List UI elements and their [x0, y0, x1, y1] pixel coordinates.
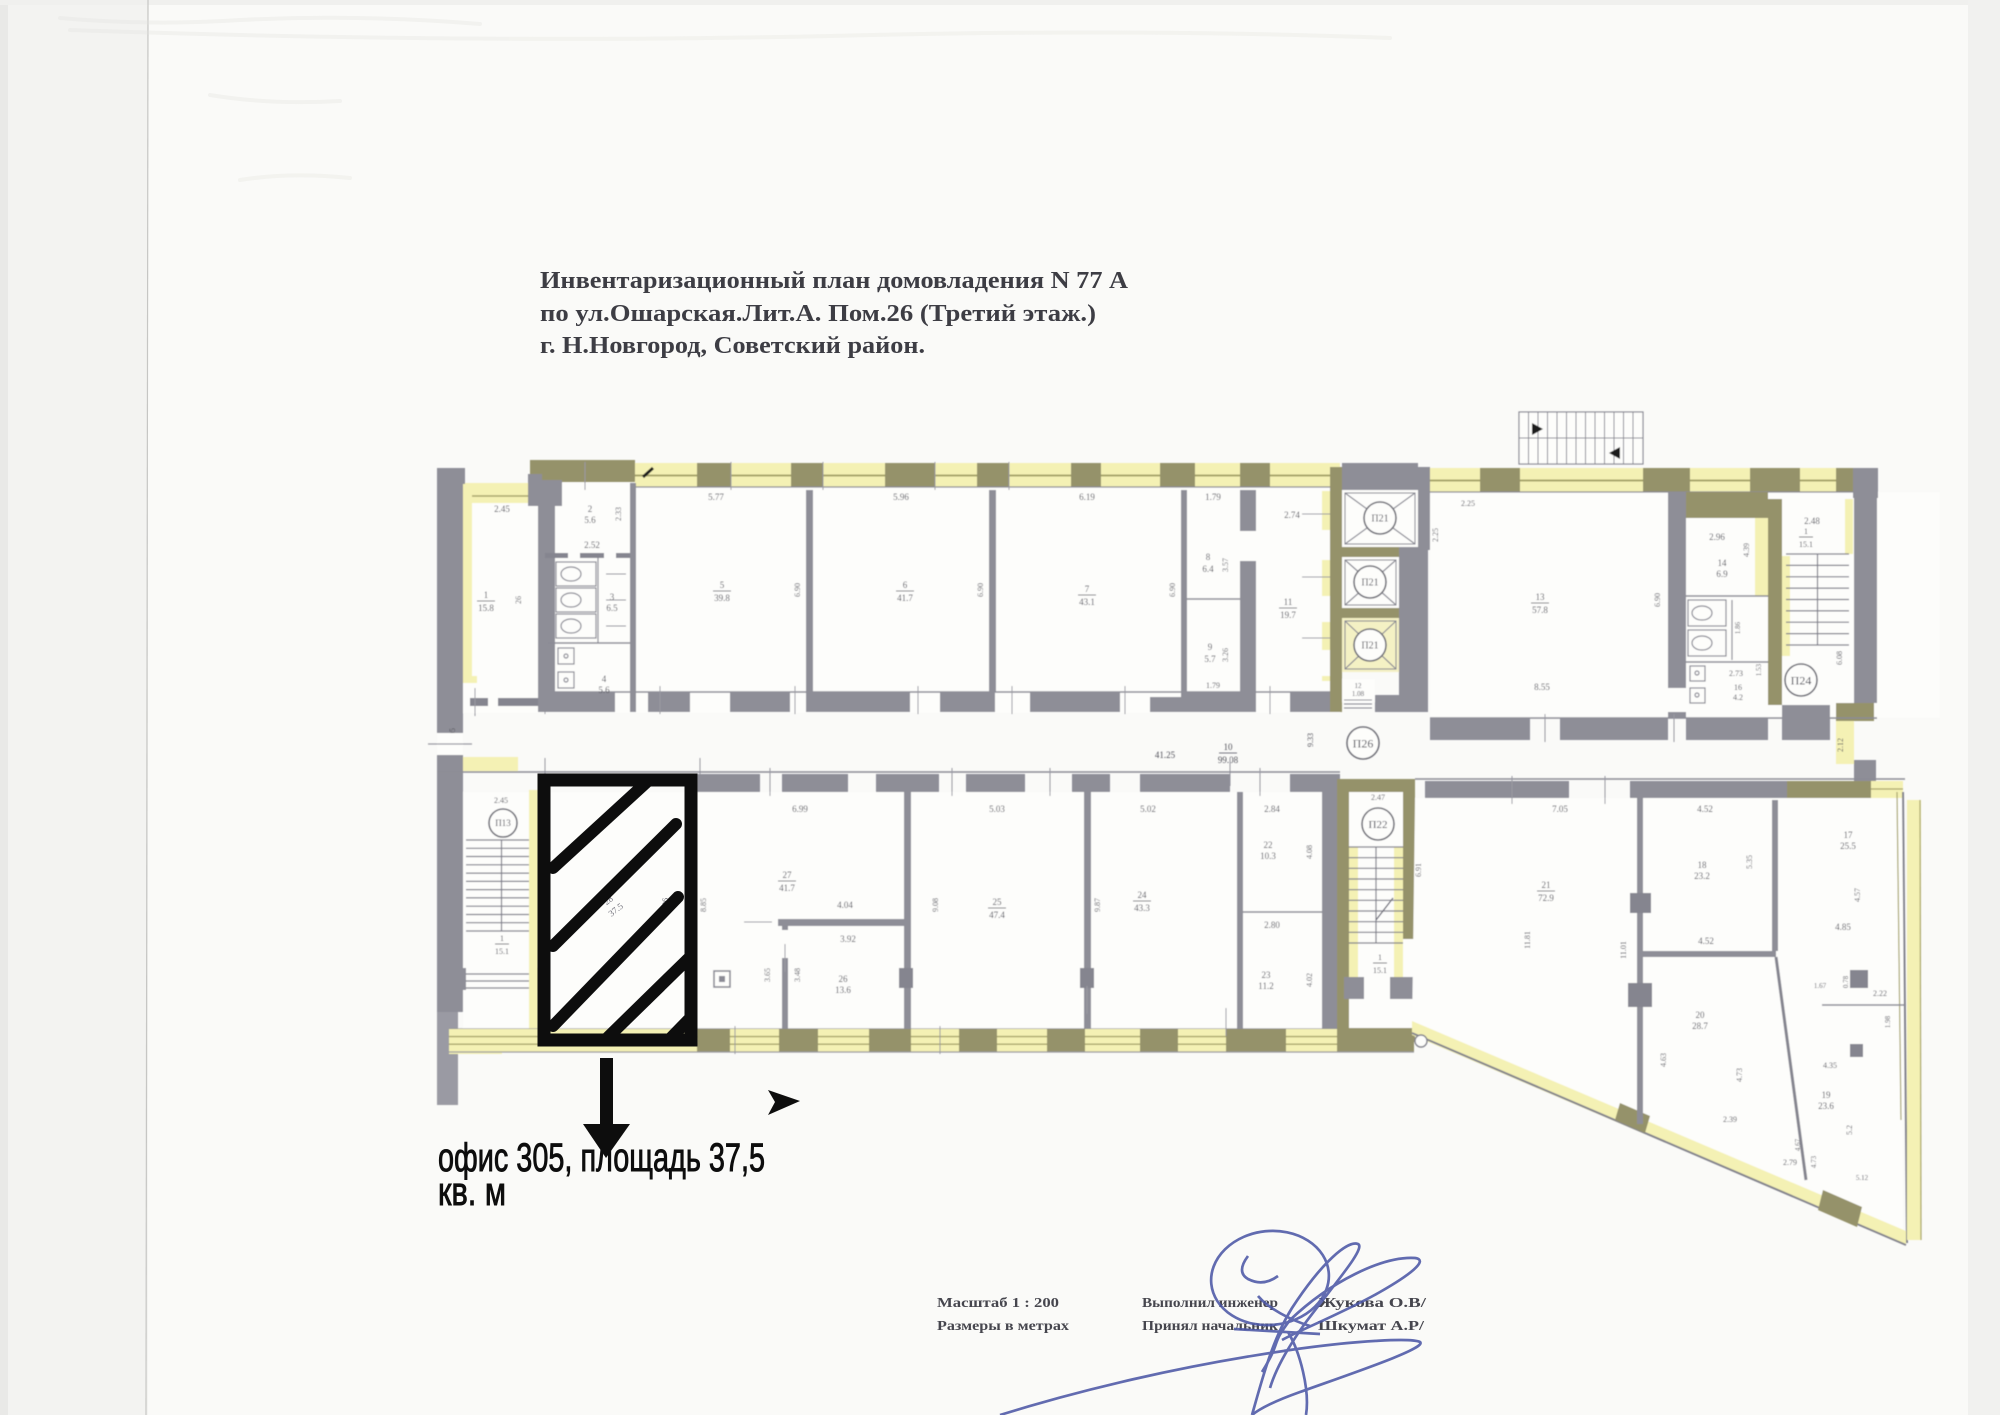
svg-text:4.35: 4.35	[1823, 1061, 1837, 1070]
svg-text:5: 5	[720, 580, 725, 590]
svg-text:П13: П13	[495, 818, 511, 828]
svg-text:5.03: 5.03	[989, 804, 1005, 814]
svg-text:6.5: 6.5	[606, 603, 618, 613]
svg-text:П26: П26	[1353, 736, 1374, 750]
svg-text:3.26: 3.26	[1221, 648, 1230, 662]
svg-text:6.99: 6.99	[792, 804, 808, 814]
svg-text:2.45: 2.45	[494, 796, 508, 805]
svg-text:6: 6	[903, 580, 908, 590]
svg-text:15.1: 15.1	[1799, 540, 1813, 549]
svg-text:П21: П21	[1371, 514, 1388, 525]
svg-text:0.78: 0.78	[1842, 975, 1850, 988]
svg-text:5.6: 5.6	[584, 515, 596, 525]
svg-text:кв. м: кв. м	[438, 1170, 506, 1214]
svg-text:4.02: 4.02	[1305, 973, 1314, 987]
svg-text:2.96: 2.96	[1709, 532, 1725, 542]
svg-text:1.86: 1.86	[1734, 621, 1742, 634]
svg-text:4.04: 4.04	[837, 900, 853, 910]
svg-text:4.73: 4.73	[1810, 1155, 1818, 1168]
svg-text:2: 2	[588, 504, 593, 514]
svg-text:2.47: 2.47	[1371, 793, 1385, 802]
svg-text:72.9: 72.9	[1538, 893, 1554, 903]
svg-text:Масштаб 1 : 200: Масштаб 1 : 200	[937, 1296, 1059, 1311]
svg-text:2.73: 2.73	[1729, 669, 1743, 678]
svg-text:22: 22	[1264, 840, 1273, 850]
svg-text:г. Н.Новгород, Советский ра: г. Н.Новгород, Советский район.	[540, 333, 925, 359]
svg-text:28.7: 28.7	[1692, 1021, 1708, 1031]
svg-text:11: 11	[1284, 597, 1293, 607]
svg-text:17: 17	[1844, 830, 1854, 840]
svg-text:11.01: 11.01	[1619, 941, 1628, 959]
svg-text:41.7: 41.7	[779, 883, 795, 893]
svg-text:9.87: 9.87	[1093, 898, 1102, 912]
svg-text:21: 21	[1542, 880, 1551, 890]
svg-text:20: 20	[1696, 1010, 1706, 1020]
svg-text:9: 9	[1208, 642, 1213, 652]
svg-text:4.52: 4.52	[1697, 804, 1713, 814]
svg-text:5.12: 5.12	[1856, 1174, 1869, 1182]
svg-text:1: 1	[1804, 527, 1808, 536]
svg-text:4: 4	[602, 674, 607, 684]
svg-text:4.73: 4.73	[1735, 1068, 1744, 1082]
svg-text:4.2: 4.2	[1733, 693, 1743, 702]
svg-text:2.48: 2.48	[1804, 516, 1820, 526]
svg-text:П21: П21	[1361, 578, 1378, 589]
svg-text:5.2: 5.2	[1845, 1125, 1854, 1135]
svg-text:6.90: 6.90	[793, 583, 802, 597]
svg-text:99.08: 99.08	[1218, 755, 1239, 765]
svg-text:1.53: 1.53	[1755, 663, 1763, 676]
svg-text:6.9: 6.9	[1716, 569, 1728, 579]
svg-text:по ул.Ошарская.Лит.А. Пом.26: по ул.Ошарская.Лит.А. Пом.26 (Третий эта…	[540, 301, 1096, 327]
svg-text:3.92: 3.92	[840, 934, 856, 944]
svg-text:1.08: 1.08	[1352, 690, 1365, 698]
svg-text:6.08: 6.08	[1835, 651, 1844, 665]
svg-text:2.25: 2.25	[1461, 499, 1475, 508]
svg-text:6.4: 6.4	[1202, 564, 1214, 574]
svg-text:9.33: 9.33	[1306, 733, 1315, 747]
svg-text:23: 23	[1262, 970, 1272, 980]
svg-text:10: 10	[1224, 742, 1234, 752]
svg-text:8.85: 8.85	[699, 898, 708, 912]
svg-text:5.96: 5.96	[893, 492, 909, 502]
svg-text:7: 7	[1085, 584, 1090, 594]
svg-text:6.90: 6.90	[1168, 583, 1177, 597]
svg-text:4.52: 4.52	[1698, 936, 1714, 946]
svg-text:2.80: 2.80	[1264, 920, 1280, 930]
svg-text:2.25: 2.25	[1431, 528, 1440, 542]
svg-text:27: 27	[783, 870, 793, 880]
svg-text:26: 26	[514, 596, 523, 604]
svg-text:11.2: 11.2	[1258, 981, 1273, 991]
svg-text:9.08: 9.08	[931, 898, 940, 912]
svg-text:6.19: 6.19	[1079, 492, 1095, 502]
svg-text:16: 16	[1734, 683, 1742, 692]
svg-text:8: 8	[1206, 552, 1211, 562]
svg-text:1: 1	[500, 934, 504, 943]
svg-text:3.48: 3.48	[793, 968, 802, 982]
svg-text:5.77: 5.77	[708, 492, 724, 502]
svg-text:3: 3	[610, 592, 615, 602]
svg-text:Выполнил инженер: Выполнил инженер	[1142, 1296, 1278, 1311]
svg-text:23.6: 23.6	[1818, 1101, 1834, 1111]
svg-text:Инвентаризационный план домо: Инвентаризационный план домовладения N 7…	[540, 268, 1129, 294]
svg-text:14: 14	[1718, 558, 1728, 568]
svg-text:6.90: 6.90	[976, 583, 985, 597]
svg-text:24: 24	[1138, 890, 1148, 900]
svg-text:П21: П21	[1361, 641, 1378, 652]
svg-text:2.84: 2.84	[1264, 804, 1280, 814]
svg-text:15.8: 15.8	[478, 603, 494, 613]
svg-text:П22: П22	[1369, 819, 1388, 831]
svg-text:43.3: 43.3	[1134, 903, 1150, 913]
svg-text:23.2: 23.2	[1694, 871, 1710, 881]
svg-text:19.7: 19.7	[1280, 610, 1296, 620]
svg-text:3.57: 3.57	[1221, 558, 1230, 572]
svg-text:4.08: 4.08	[1305, 845, 1314, 859]
svg-text:4.63: 4.63	[1659, 1053, 1668, 1067]
svg-text:7.05: 7.05	[1552, 804, 1568, 814]
svg-text:4.67: 4.67	[1794, 1138, 1802, 1151]
svg-text:6.90: 6.90	[1653, 593, 1662, 607]
svg-text:2.45: 2.45	[494, 504, 510, 514]
svg-text:41.25: 41.25	[1155, 750, 1176, 760]
svg-text:39.8: 39.8	[714, 593, 730, 603]
svg-text:4.39: 4.39	[1742, 543, 1751, 557]
svg-text:4.57: 4.57	[1853, 888, 1862, 902]
svg-text:3.65: 3.65	[763, 968, 772, 982]
svg-text:57.8: 57.8	[1532, 605, 1548, 615]
svg-text:47.4: 47.4	[989, 910, 1005, 920]
svg-text:43.1: 43.1	[1079, 597, 1095, 607]
svg-text:18: 18	[1698, 860, 1708, 870]
svg-text:13.6: 13.6	[835, 985, 851, 995]
svg-text:Шкумат А.Р/: Шкумат А.Р/	[1318, 1319, 1425, 1334]
svg-text:11.81: 11.81	[1523, 931, 1532, 949]
svg-text:1.67: 1.67	[1814, 982, 1827, 990]
svg-text:2.74: 2.74	[1284, 510, 1300, 520]
svg-text:Жукова О.В/: Жукова О.В/	[1318, 1296, 1427, 1311]
svg-text:15.1: 15.1	[1373, 966, 1387, 975]
svg-text:5.35: 5.35	[1745, 855, 1754, 869]
svg-text:2.33: 2.33	[614, 507, 623, 521]
svg-text:1: 1	[484, 590, 489, 600]
svg-text:12: 12	[1355, 682, 1363, 690]
svg-text:2.79: 2.79	[1783, 1158, 1797, 1167]
svg-text:5.7: 5.7	[1204, 654, 1216, 664]
svg-text:19: 19	[1822, 1090, 1832, 1100]
svg-text:1.98: 1.98	[1884, 1015, 1892, 1028]
svg-text:2.12: 2.12	[1836, 738, 1845, 752]
svg-text:26: 26	[839, 974, 849, 984]
svg-text:13: 13	[1536, 592, 1546, 602]
svg-text:П24: П24	[1791, 673, 1812, 687]
svg-text:Размеры в метрах: Размеры в метрах	[937, 1319, 1069, 1334]
svg-text:4.85: 4.85	[1835, 922, 1851, 932]
svg-text:1: 1	[1378, 953, 1382, 962]
svg-text:1.79: 1.79	[1206, 681, 1220, 690]
svg-text:6.91: 6.91	[1414, 863, 1423, 877]
svg-text:5.02: 5.02	[1140, 804, 1156, 814]
svg-text:2.39: 2.39	[1723, 1115, 1737, 1124]
svg-text:25: 25	[993, 897, 1003, 907]
svg-text:25.5: 25.5	[1840, 841, 1856, 851]
svg-text:1.79: 1.79	[1205, 492, 1221, 502]
svg-text:2.22: 2.22	[1873, 989, 1887, 998]
svg-text:8.55: 8.55	[1534, 682, 1550, 692]
svg-text:2.52: 2.52	[584, 540, 600, 550]
svg-text:5.6: 5.6	[598, 685, 610, 695]
svg-text:41.7: 41.7	[897, 593, 913, 603]
svg-text:10.3: 10.3	[1260, 851, 1276, 861]
svg-text:15.1: 15.1	[495, 947, 509, 956]
